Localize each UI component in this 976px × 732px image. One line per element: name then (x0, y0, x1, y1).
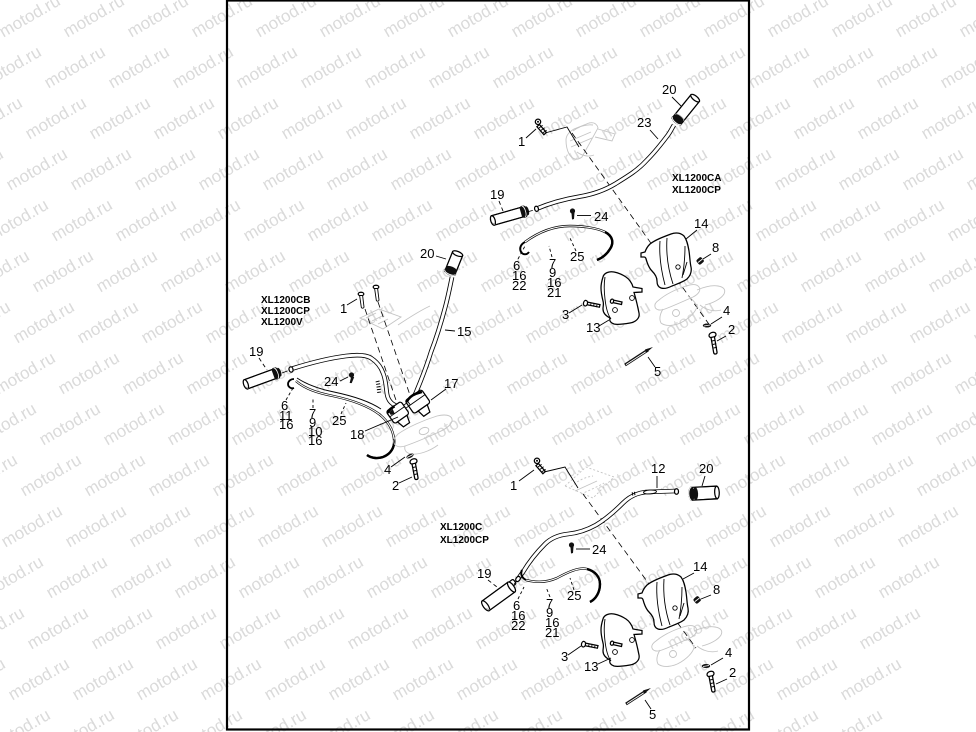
svg-text:14: 14 (694, 216, 708, 231)
svg-text:22: 22 (511, 618, 525, 633)
svg-text:19: 19 (477, 566, 491, 581)
svg-text:24: 24 (594, 209, 608, 224)
svg-text:XL1200CB: XL1200CB (261, 295, 310, 306)
svg-text:XL1200C: XL1200C (440, 522, 482, 533)
svg-text:20: 20 (420, 246, 434, 261)
svg-text:23: 23 (637, 115, 651, 130)
svg-text:19: 19 (490, 187, 504, 202)
svg-text:2: 2 (728, 322, 735, 337)
svg-text:25: 25 (570, 249, 584, 264)
svg-text:1: 1 (518, 134, 525, 149)
svg-text:2: 2 (392, 478, 399, 493)
svg-text:8: 8 (713, 582, 720, 597)
svg-text:14: 14 (693, 559, 707, 574)
svg-text:25: 25 (567, 588, 581, 603)
svg-text:24: 24 (324, 374, 338, 389)
svg-text:3: 3 (562, 307, 569, 322)
svg-text:2: 2 (729, 665, 736, 680)
svg-text:3: 3 (561, 649, 568, 664)
svg-text:4: 4 (725, 645, 732, 660)
svg-text:17: 17 (444, 376, 458, 391)
svg-text:XL1200CP: XL1200CP (440, 535, 489, 546)
svg-text:19: 19 (249, 344, 263, 359)
svg-text:21: 21 (547, 285, 561, 300)
svg-text:15: 15 (457, 324, 471, 339)
svg-text:21: 21 (545, 625, 559, 640)
svg-text:1: 1 (510, 478, 517, 493)
svg-text:4: 4 (384, 462, 391, 477)
svg-text:22: 22 (512, 278, 526, 293)
svg-text:16: 16 (279, 417, 293, 432)
svg-text:5: 5 (654, 364, 661, 379)
svg-text:1: 1 (340, 301, 347, 316)
svg-text:XL1200V: XL1200V (261, 317, 303, 328)
svg-text:20: 20 (699, 461, 713, 476)
svg-text:24: 24 (592, 542, 606, 557)
svg-text:18: 18 (350, 427, 364, 442)
svg-text:XL1200CP: XL1200CP (672, 185, 721, 196)
svg-text:16: 16 (308, 433, 322, 448)
svg-text:XL1200CA: XL1200CA (672, 173, 721, 184)
svg-text:8: 8 (712, 240, 719, 255)
svg-text:13: 13 (584, 659, 598, 674)
svg-text:20: 20 (662, 82, 676, 97)
svg-text:25: 25 (332, 413, 346, 428)
svg-text:12: 12 (651, 461, 665, 476)
svg-text:5: 5 (649, 707, 656, 722)
svg-text:XL1200CP: XL1200CP (261, 306, 310, 317)
svg-text:13: 13 (586, 320, 600, 335)
svg-text:4: 4 (723, 303, 730, 318)
